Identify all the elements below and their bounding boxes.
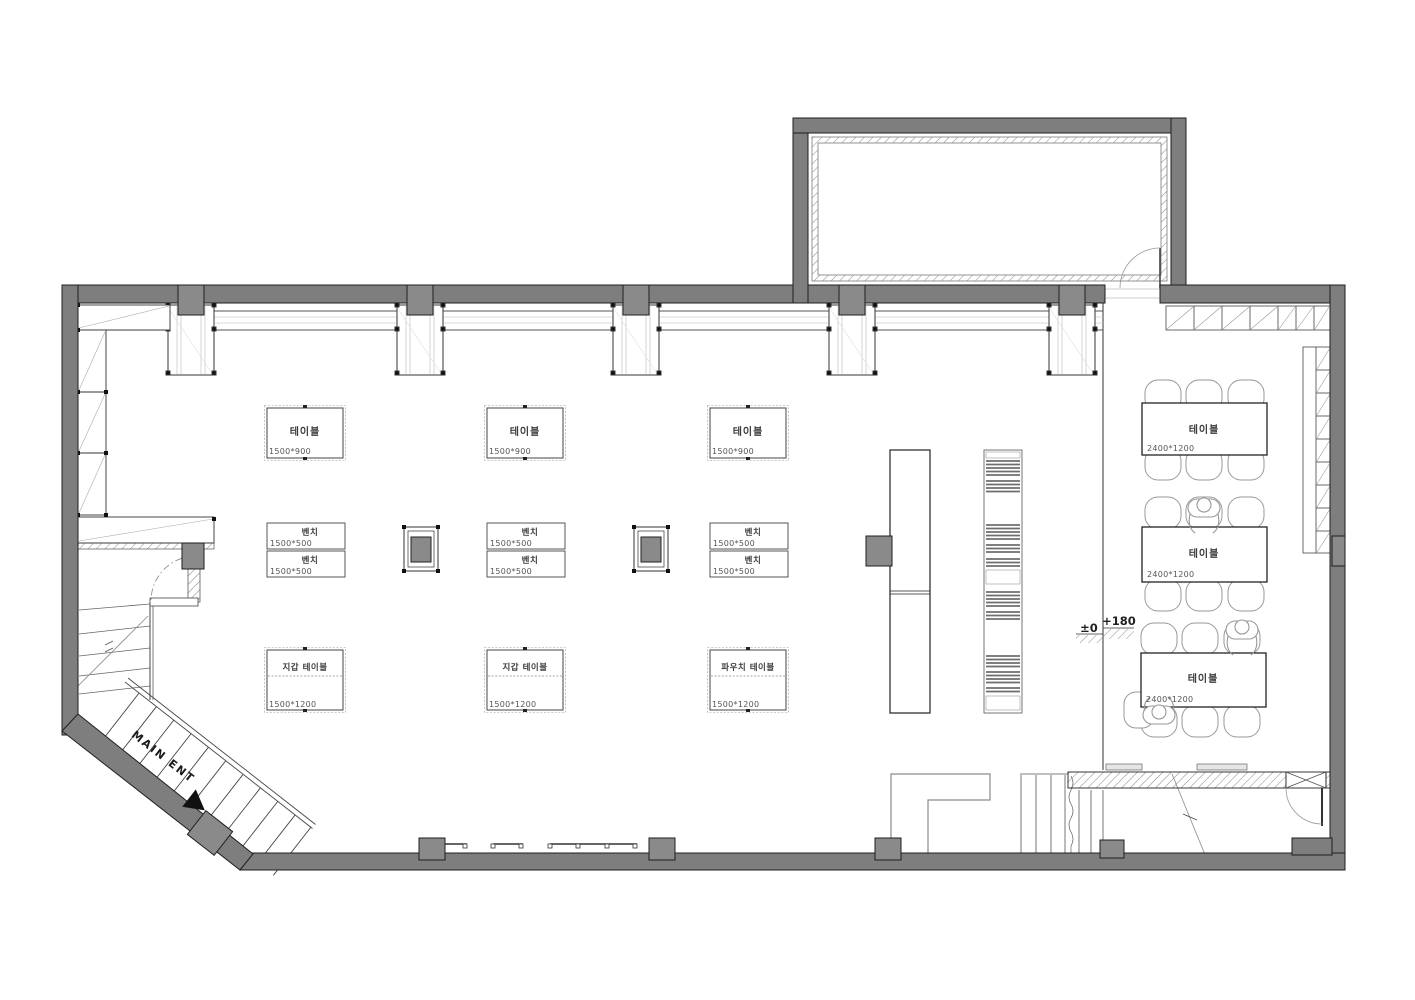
- storage-rack: [984, 450, 1022, 713]
- raised-zone-right-shelf: [1303, 347, 1331, 553]
- table-dim: 1500*900: [712, 447, 754, 456]
- wall-right: [1330, 285, 1345, 870]
- table-label: 테이블: [733, 425, 764, 438]
- column-display-box: [632, 525, 670, 573]
- seating-table-label: 테이블: [1189, 423, 1220, 436]
- wall-top-right: [1160, 285, 1345, 303]
- table-dim: 1500*900: [489, 447, 531, 456]
- bench-label: 벤치: [302, 555, 319, 566]
- wall-room-top: [793, 118, 1186, 133]
- table-label: 테이블: [290, 425, 321, 438]
- display-rails: [432, 844, 637, 848]
- labels: 테이블 1500*900 테이블 1500*900 테이블 1500*900 벤…: [116, 423, 1219, 819]
- floor-plan: 테이블 1500*900 테이블 1500*900 테이블 1500*900 벤…: [0, 0, 1415, 1000]
- product-table-label: 지갑 테이블: [502, 662, 547, 673]
- tall-partition: [890, 450, 930, 713]
- product-table-dim: 1500*1200: [712, 700, 759, 709]
- product-table-label: 파우치 테이블: [721, 662, 774, 673]
- bench-dim: 1500*500: [713, 539, 755, 548]
- bench-dim: 1500*500: [270, 539, 312, 548]
- product-table-label: 지갑 테이블: [282, 662, 327, 673]
- upper-room-door: [1105, 248, 1160, 298]
- level-raised-label: +180: [1102, 614, 1136, 628]
- product-table-dim: 1500*1200: [489, 700, 536, 709]
- bench-label: 벤치: [522, 555, 539, 566]
- product-table-dim: 1500*1200: [269, 700, 316, 709]
- bench-dim: 1500*500: [270, 567, 312, 576]
- bench-label: 벤치: [745, 555, 762, 566]
- bench-dim: 1500*500: [490, 539, 532, 548]
- table-label: 테이블: [510, 425, 541, 438]
- level-ground-label: ±0: [1080, 621, 1098, 635]
- bench-label: 벤치: [302, 527, 319, 538]
- raised-zone-bottom-wall: [1068, 764, 1334, 826]
- furniture: [76, 303, 1331, 737]
- wall-room-right: [1171, 118, 1186, 288]
- interior-stair-left: [74, 602, 153, 700]
- bench-label: 벤치: [745, 527, 762, 538]
- bench-dim: 1500*500: [490, 567, 532, 576]
- seating-table-dim: 2400*1200: [1147, 444, 1194, 453]
- table-dim: 1500*900: [269, 447, 311, 456]
- walls: [62, 118, 1345, 870]
- floor-plan-canvas: 테이블 1500*900 테이블 1500*900 테이블 1500*900 벤…: [0, 0, 1415, 1000]
- column-display-box: [402, 525, 440, 573]
- wall-bottom: [240, 853, 1345, 870]
- bench-label: 벤치: [522, 527, 539, 538]
- wall-bottom-right-step: [1292, 838, 1332, 855]
- bench-dim: 1500*500: [713, 567, 755, 576]
- wall-room-left: [793, 118, 808, 303]
- seating-table-dim: 2400*1200: [1147, 570, 1194, 579]
- upper-room-lining: [812, 137, 1167, 281]
- bottom-center-partition: [891, 774, 990, 860]
- raised-zone-top-shelf: [1166, 306, 1330, 330]
- wall-left: [62, 285, 78, 735]
- wall-diagonal: [62, 714, 253, 870]
- wall-display-rail: [80, 311, 1103, 330]
- seating-table-label: 테이블: [1188, 672, 1219, 685]
- seating-table-dim: 2400*1200: [1146, 695, 1193, 704]
- seating-table-label: 테이블: [1189, 547, 1220, 560]
